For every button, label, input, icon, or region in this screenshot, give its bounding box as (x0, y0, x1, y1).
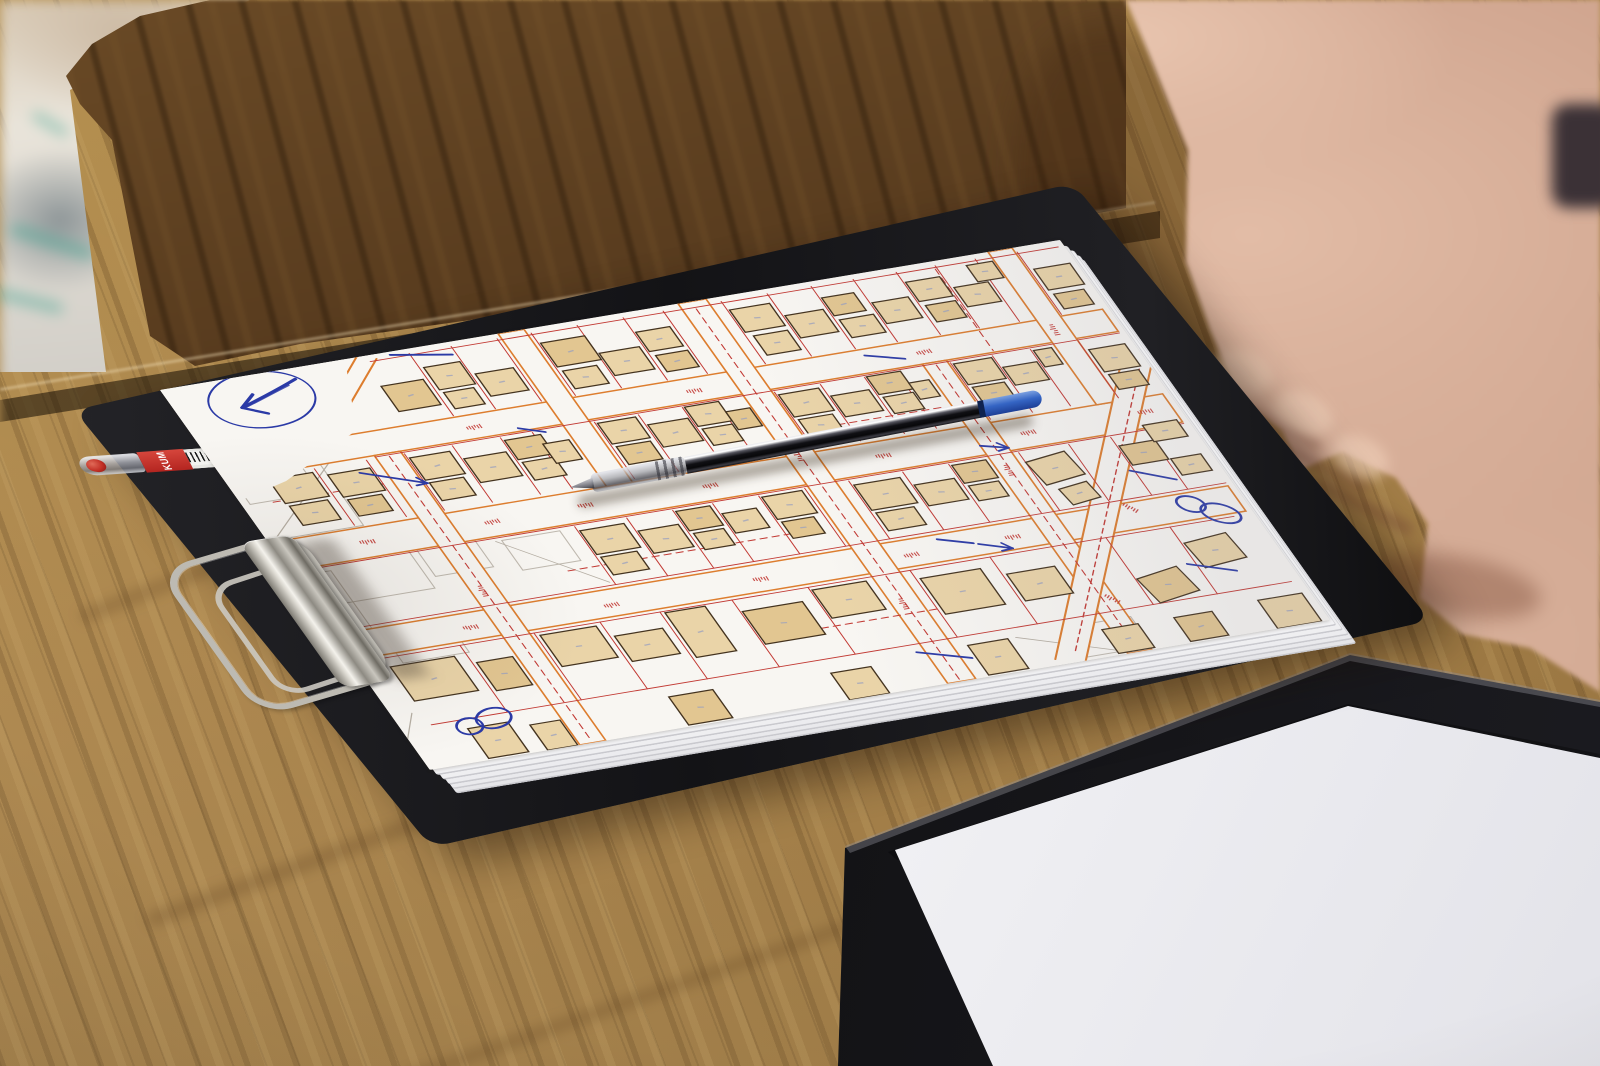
photo-scene: KUM (0, 0, 1600, 1066)
red-pen-red-tip (83, 459, 109, 473)
red-pen-brand-text: KUM (154, 451, 175, 470)
dark-object-edge (1552, 104, 1600, 208)
